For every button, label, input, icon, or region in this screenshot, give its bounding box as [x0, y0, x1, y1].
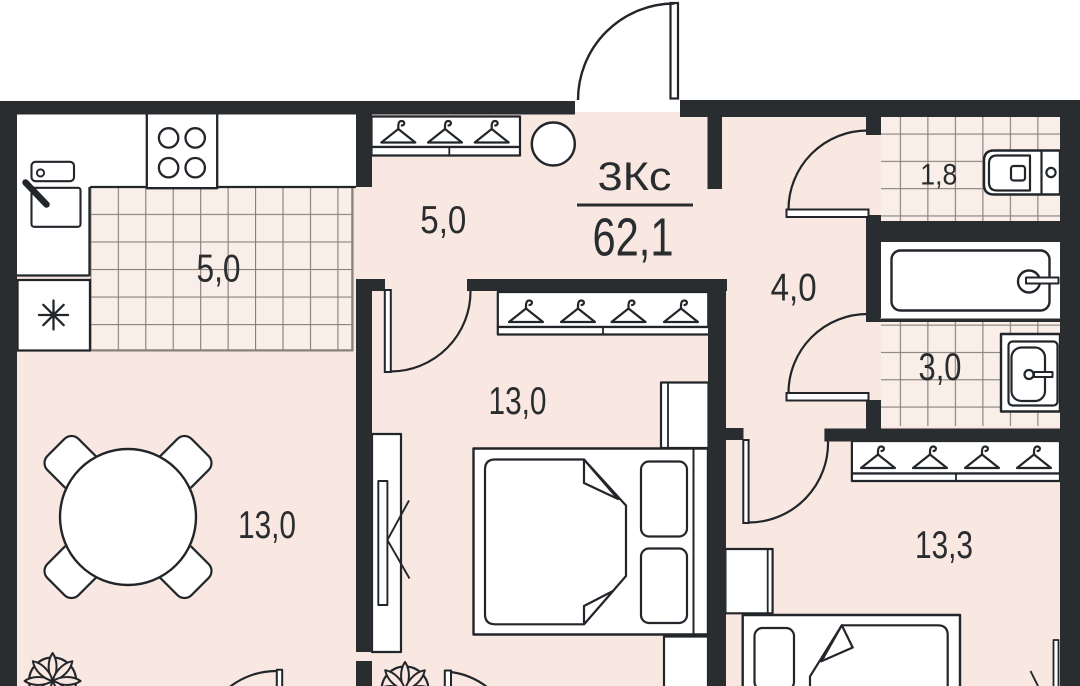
svg-text:3Кс: 3Кс	[598, 155, 672, 199]
svg-text:13,0: 13,0	[238, 504, 296, 547]
svg-text:5,0: 5,0	[420, 199, 466, 242]
svg-text:1,8: 1,8	[920, 158, 957, 191]
svg-text:62,1: 62,1	[593, 208, 674, 268]
svg-text:4,0: 4,0	[771, 267, 817, 310]
svg-text:13,3: 13,3	[915, 524, 973, 567]
svg-text:13,0: 13,0	[489, 380, 547, 423]
svg-text:5,0: 5,0	[197, 248, 241, 291]
svg-text:3,0: 3,0	[919, 346, 962, 389]
